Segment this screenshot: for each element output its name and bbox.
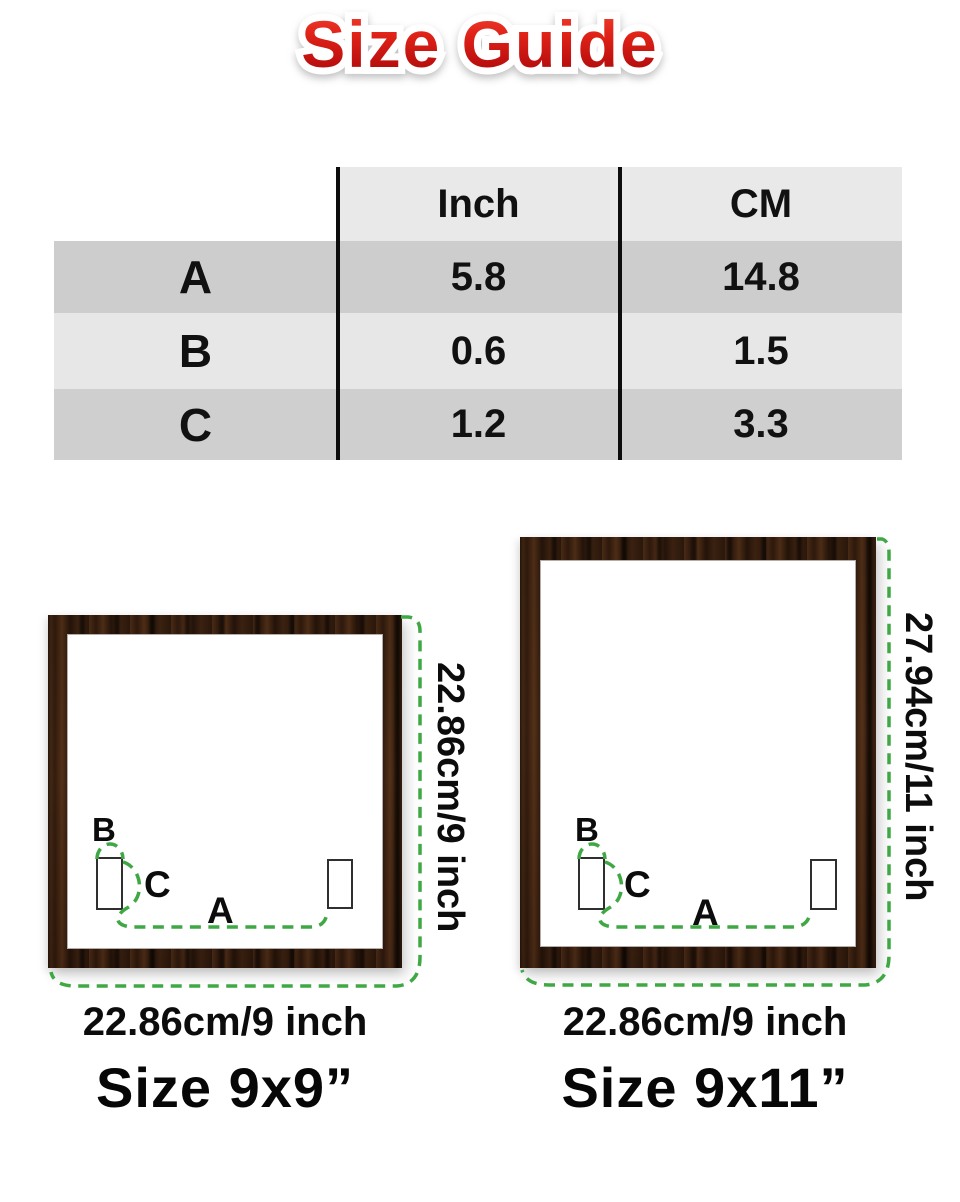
- page-title-text: Size Guide: [0, 4, 960, 84]
- frame-9x9-left-hanger-slot: [96, 857, 123, 910]
- frame-9x11-height-dimension: 27.94cm/11 inch: [896, 597, 939, 917]
- frame-9x11-marker-a: A: [692, 894, 719, 931]
- frame-9x11-left-hanger-slot: [578, 857, 605, 910]
- frame-9x9-marker-b: B: [92, 813, 116, 846]
- size-table: Inch CM A 5.8 14.8 B 0.6 1.5 C 1.2 3.3: [54, 167, 902, 460]
- frame-9x11-marker-b: B: [575, 813, 599, 846]
- frame-9x9-size-label: Size 9x9”: [40, 1055, 410, 1120]
- frame-9x11-width-dimension: 22.86cm/9 inch: [520, 1000, 890, 1045]
- frame-9x11-right-hanger-slot: [810, 859, 837, 910]
- frame-9x11-marker-c: C: [624, 866, 651, 903]
- table-row-a: A 5.8 14.8: [54, 241, 902, 313]
- row-a-inch: 5.8: [337, 241, 620, 313]
- table-row-c: C 1.2 3.3: [54, 389, 902, 460]
- row-c-label: C: [54, 389, 337, 460]
- table-header-row: Inch CM: [54, 167, 902, 241]
- table-row-b: B 0.6 1.5: [54, 313, 902, 389]
- table-header-blank: [54, 167, 337, 241]
- row-c-cm: 3.3: [620, 389, 902, 460]
- row-b-inch: 0.6: [337, 313, 620, 389]
- table-header-inch: Inch: [337, 167, 620, 241]
- row-a-label: A: [54, 241, 337, 313]
- frame-9x11-size-label: Size 9x11”: [520, 1055, 890, 1120]
- frame-9x9-right-hanger-slot: [327, 859, 353, 909]
- row-b-label: B: [54, 313, 337, 389]
- table-divider-line-2: [618, 167, 622, 460]
- table-header-cm: CM: [620, 167, 902, 241]
- row-c-inch: 1.2: [337, 389, 620, 460]
- row-a-cm: 14.8: [620, 241, 902, 313]
- frame-9x9-height-dimension: 22.86cm/9 inch: [428, 650, 471, 945]
- row-b-cm: 1.5: [620, 313, 902, 389]
- table-divider-line-1: [336, 167, 340, 460]
- frame-9x9-marker-c: C: [144, 866, 171, 903]
- frame-9x9-width-dimension: 22.86cm/9 inch: [40, 1000, 410, 1045]
- page-title: Size Guide Size Guide: [0, 4, 960, 90]
- frame-9x9-marker-a: A: [207, 892, 234, 929]
